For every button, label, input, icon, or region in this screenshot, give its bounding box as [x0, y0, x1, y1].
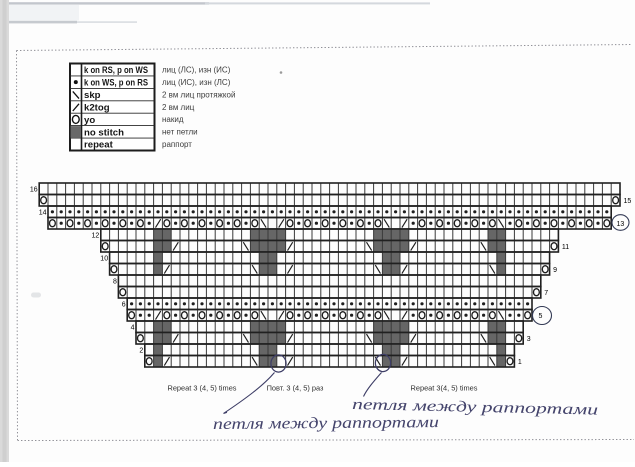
svg-text:repeat: repeat: [84, 140, 114, 151]
svg-text:15: 15: [624, 198, 632, 205]
svg-text:2: 2: [139, 347, 143, 354]
svg-text:14: 14: [39, 209, 47, 216]
svg-text:16: 16: [30, 186, 38, 193]
svg-text:yo: yo: [84, 115, 95, 126]
svg-text:1: 1: [518, 359, 522, 366]
svg-text:лиц (ЛС), изн (ИС): лиц (ЛС), изн (ИС): [162, 66, 231, 75]
svg-text:Повт. 3 (4, 5) раз: Повт. 3 (4, 5) раз: [267, 384, 324, 393]
svg-text:k on WS, p on RS: k on WS, p on RS: [84, 78, 148, 89]
svg-text:2 вм лиц: 2 вм лиц: [162, 103, 195, 112]
svg-text:13: 13: [617, 221, 625, 228]
svg-text:2 вм лиц протяжкой: 2 вм лиц протяжкой: [162, 90, 235, 99]
svg-text:4: 4: [131, 324, 135, 331]
svg-text:накид: накид: [162, 115, 184, 124]
svg-text:Repeat 3(4, 5) times: Repeat 3(4, 5) times: [411, 384, 478, 393]
svg-text:skp: skp: [84, 90, 101, 101]
svg-text:k on RS, p on WS: k on RS, p on WS: [84, 65, 148, 76]
svg-text:3: 3: [527, 336, 531, 343]
svg-text:k2tog: k2tog: [84, 102, 110, 113]
svg-text:6: 6: [122, 301, 126, 308]
svg-text:лиц (ИС), изн (ЛС): лиц (ИС), изн (ЛС): [162, 78, 231, 87]
svg-text:9: 9: [553, 267, 557, 274]
svg-text:8: 8: [113, 278, 117, 285]
svg-text:раппорт: раппорт: [162, 140, 192, 149]
svg-text:no stitch: no stitch: [84, 127, 124, 138]
svg-text:11: 11: [562, 244, 569, 251]
svg-text:нет петли: нет петли: [162, 128, 198, 137]
svg-text:7: 7: [544, 290, 548, 297]
svg-text:петля между раппортами: петля между раппортами: [213, 414, 439, 433]
svg-text:Repeat 3 (4, 5) times: Repeat 3 (4, 5) times: [167, 384, 236, 393]
svg-text:5: 5: [539, 313, 543, 320]
svg-text:12: 12: [92, 232, 100, 239]
svg-text:10: 10: [100, 255, 108, 262]
